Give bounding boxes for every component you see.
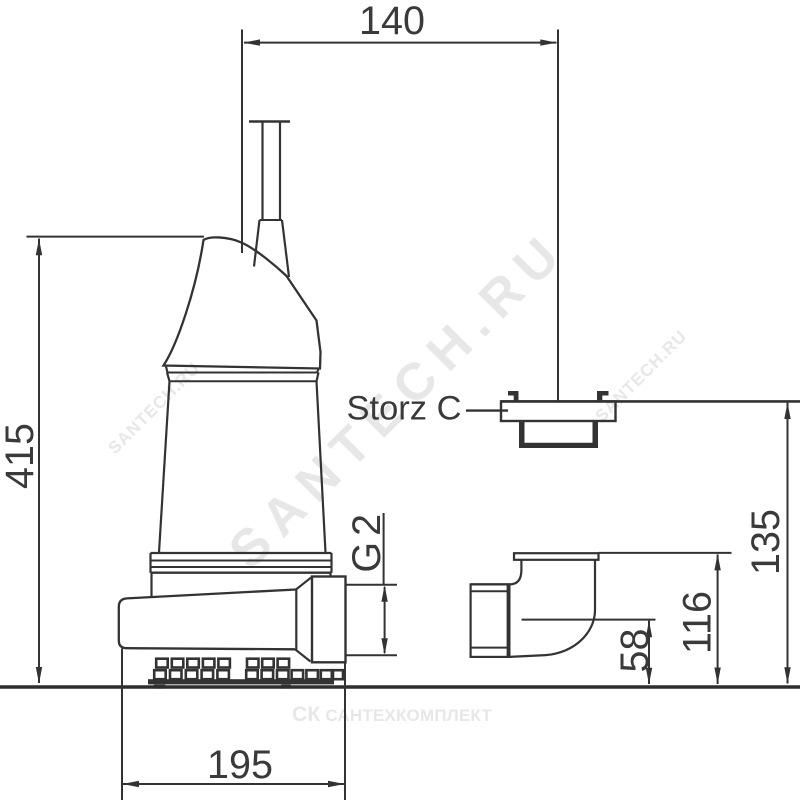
svg-text:SANTECH.RU: SANTECH.RU: [591, 326, 690, 425]
svg-text:116: 116: [676, 591, 720, 654]
svg-text:415: 415: [0, 423, 42, 489]
svg-text:140: 140: [359, 0, 425, 43]
svg-text:СК САНТЕХКОМПЛЕКТ: СК САНТЕХКОМПЛЕКТ: [292, 703, 492, 726]
svg-text:Storz C: Storz C: [347, 390, 462, 428]
svg-text:58: 58: [613, 629, 657, 673]
svg-text:195: 195: [207, 743, 273, 787]
svg-text:135: 135: [744, 509, 788, 575]
svg-text:G 2: G 2: [345, 516, 389, 573]
